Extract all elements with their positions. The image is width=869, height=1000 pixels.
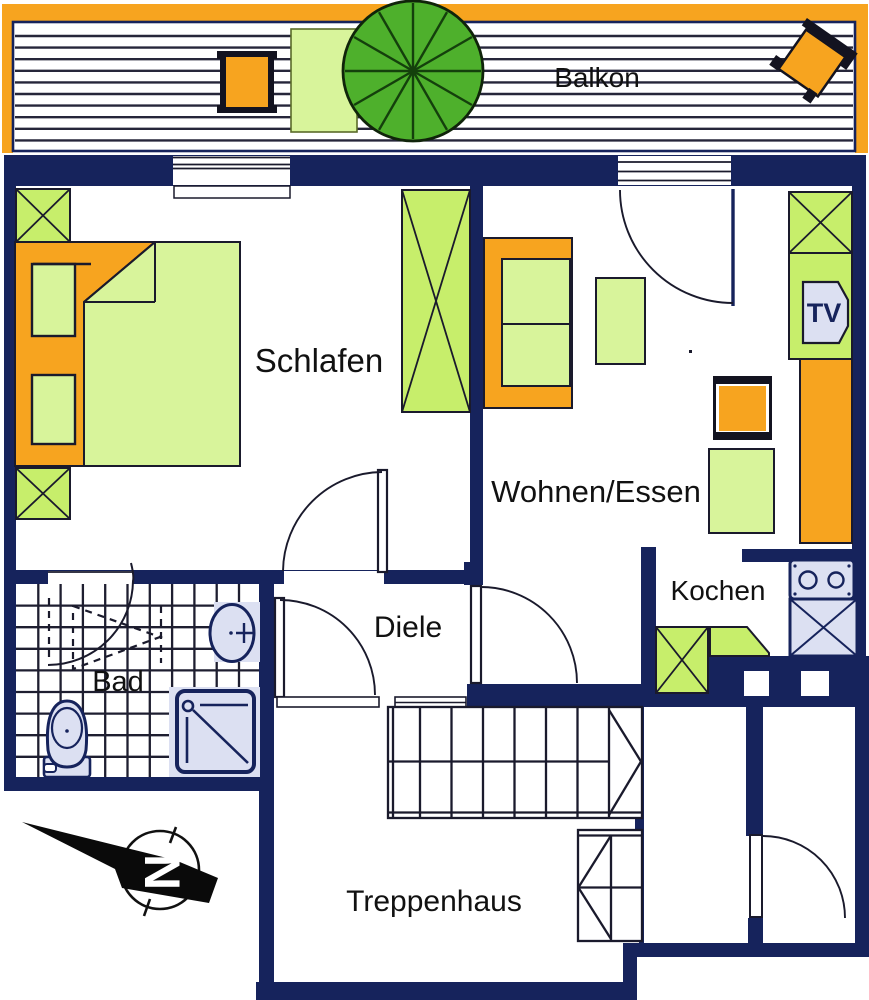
svg-text:Treppenhaus: Treppenhaus (346, 885, 522, 918)
svg-text:Diele: Diele (374, 611, 442, 644)
svg-text:Bad: Bad (92, 666, 144, 698)
svg-text:Schlafen: Schlafen (255, 342, 383, 379)
svg-text:TV: TV (807, 298, 842, 328)
svg-text:Wohnen/Essen: Wohnen/Essen (491, 474, 701, 509)
svg-text:Balkon: Balkon (554, 62, 640, 93)
svg-text:N: N (134, 854, 190, 890)
svg-text:Kochen: Kochen (671, 575, 766, 606)
